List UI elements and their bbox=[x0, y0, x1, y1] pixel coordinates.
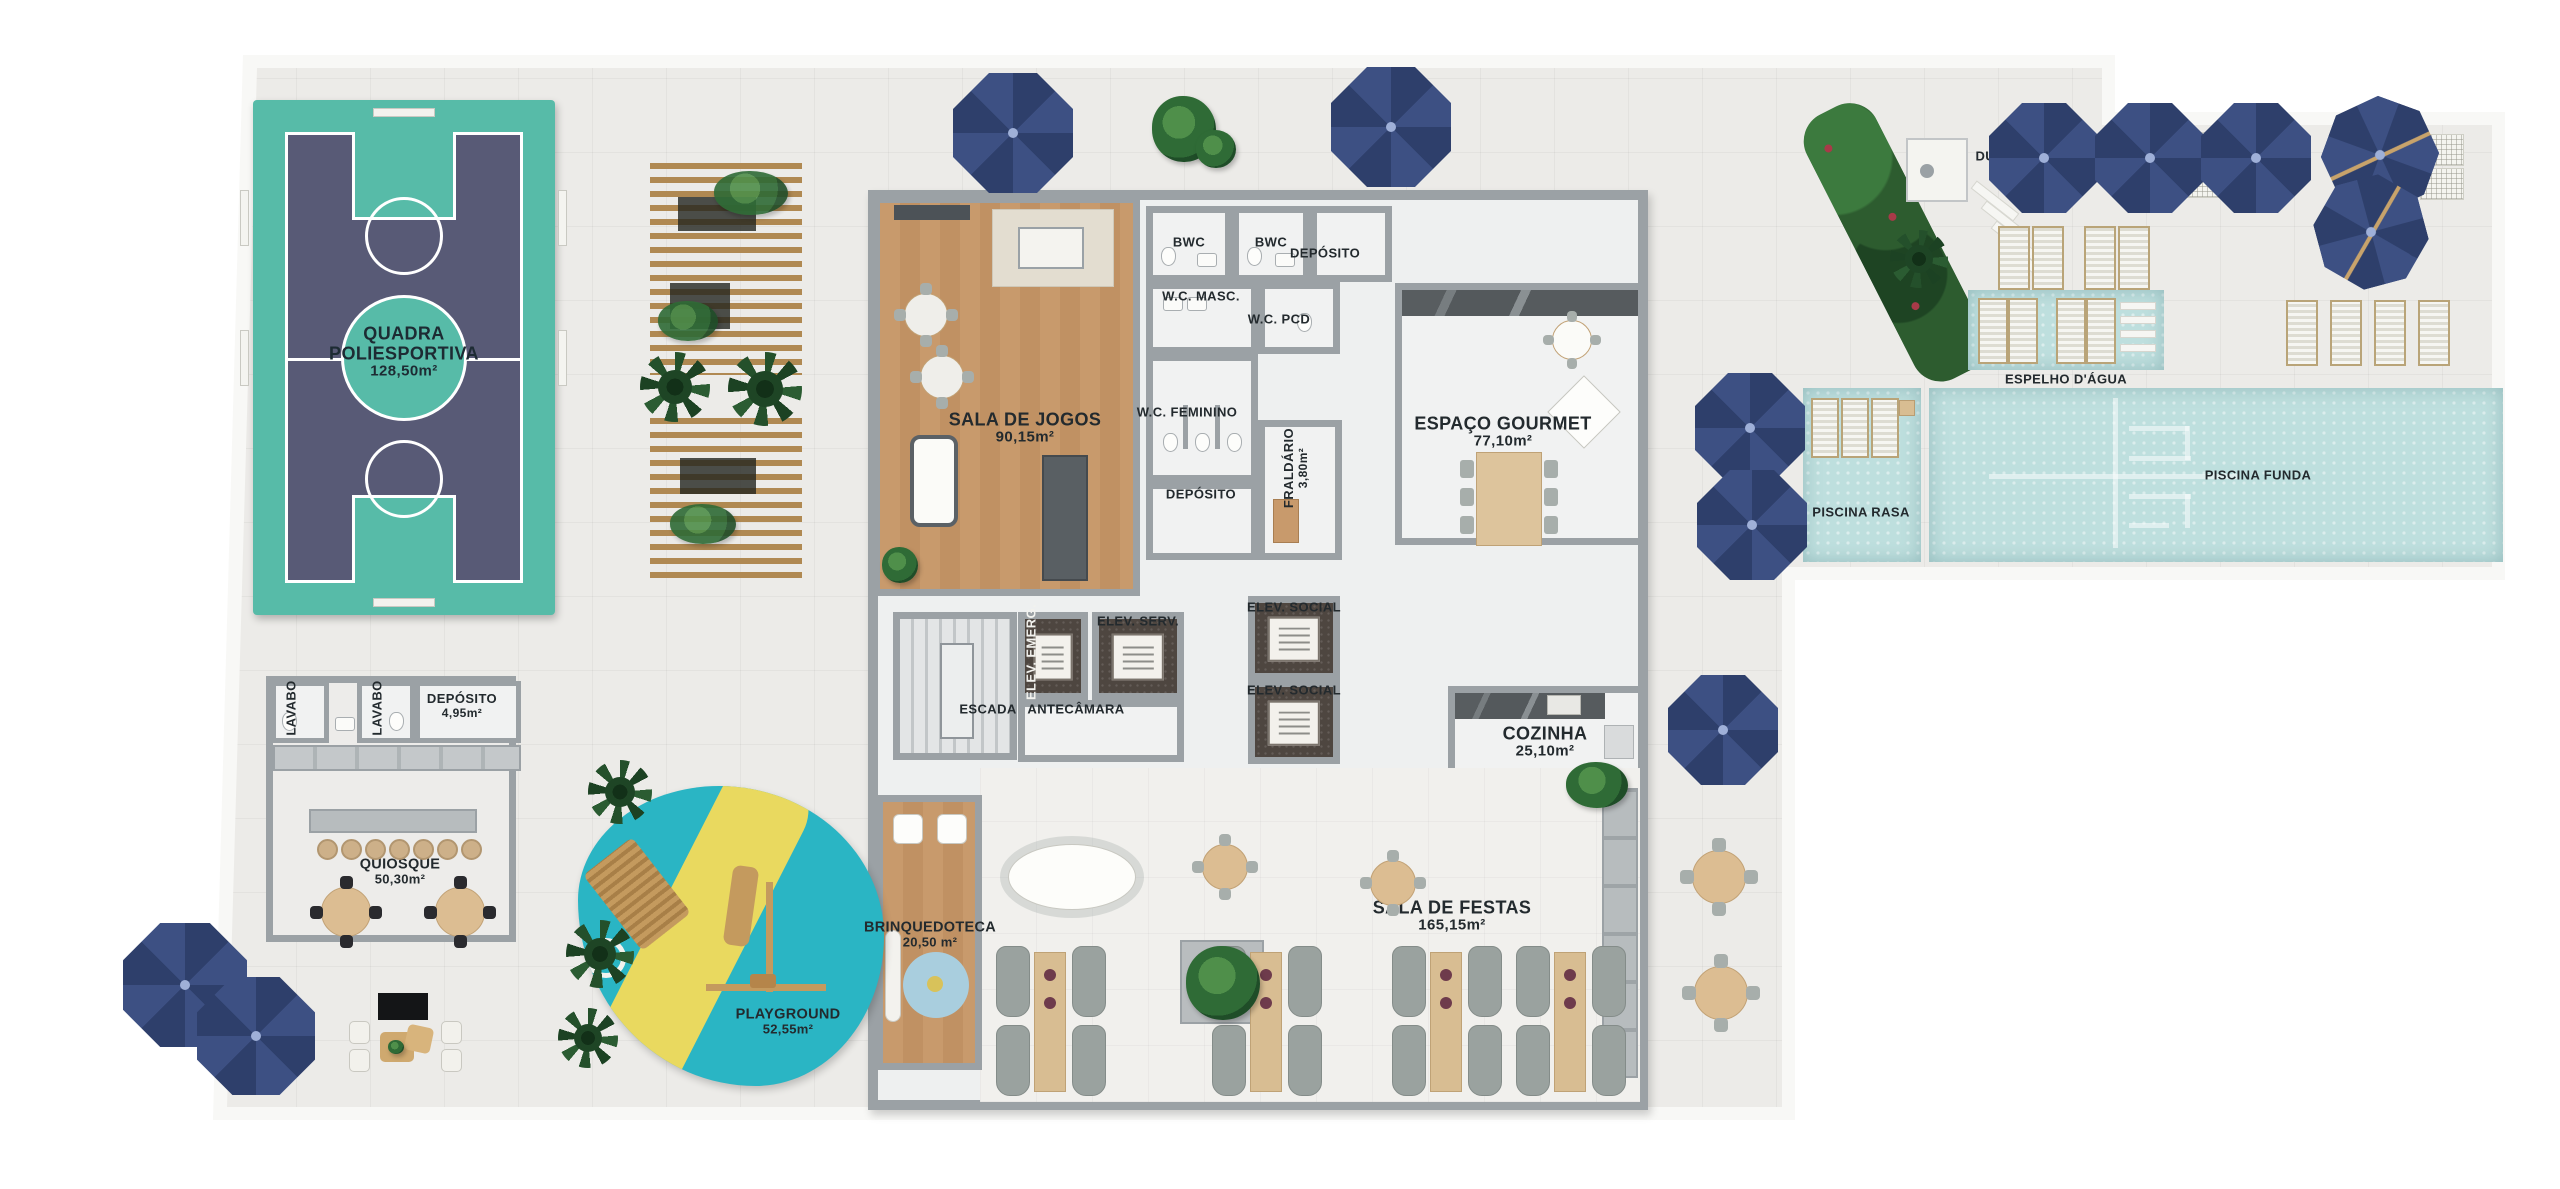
umbrella bbox=[2095, 103, 2205, 213]
plant bbox=[1566, 762, 1628, 808]
pergola bbox=[650, 163, 802, 375]
pergola-vine bbox=[670, 504, 736, 544]
palm-tree bbox=[728, 352, 802, 426]
label-sala-jogos: SALA DE JOGOS 90,15m² bbox=[949, 410, 1102, 447]
bar-stool bbox=[413, 839, 434, 860]
room-name: BRINQUEDOTECA bbox=[864, 920, 996, 936]
label-espelho-dagua: ESPELHO D'ÁGUA bbox=[2005, 373, 2127, 388]
terrace-table bbox=[1694, 966, 1748, 1020]
plant bbox=[882, 547, 918, 583]
dining-chair bbox=[1544, 460, 1558, 478]
label-lavabo-2: LAVABO bbox=[371, 680, 386, 735]
umbrella bbox=[1697, 470, 1807, 580]
bar-stool bbox=[341, 839, 362, 860]
pergola bbox=[650, 418, 802, 583]
room-name: QUADRA POLIESPORTIVA bbox=[319, 323, 489, 363]
fridge bbox=[1604, 725, 1634, 759]
court-arc-bottom bbox=[365, 440, 443, 518]
cabinet bbox=[894, 205, 970, 220]
room-name: LAVABO bbox=[371, 680, 386, 735]
armchair bbox=[441, 1021, 462, 1044]
room-area: 165,15m² bbox=[1373, 918, 1532, 935]
room-name: ANTECÂMARA bbox=[1027, 703, 1124, 718]
court-bench bbox=[240, 190, 249, 246]
court-bench bbox=[240, 330, 249, 386]
backboard-top bbox=[373, 108, 435, 117]
plant bbox=[388, 1040, 404, 1054]
indoor-tree bbox=[1186, 946, 1260, 1020]
label-deposito-top: DEPÓSITO bbox=[1290, 247, 1360, 262]
room-name: COZINHA bbox=[1503, 724, 1588, 744]
shower-head-icon bbox=[1920, 164, 1934, 178]
palm-tree bbox=[566, 920, 634, 988]
room-area: 3,80m² bbox=[1297, 428, 1310, 508]
room-name: BWC bbox=[1255, 236, 1287, 251]
court-bench bbox=[558, 330, 567, 386]
label-quiosque: QUIOSQUE 50,30m² bbox=[360, 857, 441, 888]
sun-lounger bbox=[2084, 226, 2116, 290]
room-sala-jogos bbox=[873, 196, 1140, 596]
dining-chair bbox=[1544, 516, 1558, 534]
room-name: ELEV. SOCIAL bbox=[1247, 601, 1341, 616]
tv-panel bbox=[378, 993, 428, 1020]
in-water-lounger bbox=[2086, 298, 2116, 364]
room-area: 128,50m² bbox=[319, 364, 489, 381]
label-elev-emerg: ELEV. EMERG. bbox=[1025, 604, 1040, 700]
palm-tree bbox=[588, 760, 652, 824]
label-lavabo-1: LAVABO bbox=[285, 680, 300, 735]
label-deposito-quiosque: DEPÓSITO 4,95m² bbox=[427, 692, 497, 720]
quiosque-table bbox=[321, 887, 371, 937]
sun-lounger bbox=[2374, 300, 2406, 366]
label-bwc1: BWC bbox=[1173, 236, 1205, 251]
room-sala-festas bbox=[980, 768, 1640, 1102]
label-brinquedoteca: BRINQUEDOTECA 20,50 m² bbox=[864, 920, 996, 951]
round-table bbox=[1370, 860, 1416, 906]
coffee-table bbox=[404, 1024, 435, 1055]
label-escada: ESCADA bbox=[959, 703, 1016, 718]
kids-table bbox=[937, 814, 967, 844]
shrub bbox=[1196, 130, 1236, 168]
in-water-lounger bbox=[1871, 398, 1899, 458]
game-table bbox=[920, 355, 964, 399]
label-fraldario: FRALDÁRIO 3,80m² bbox=[1282, 428, 1310, 508]
room-name: ESPELHO D'ÁGUA bbox=[2005, 373, 2127, 388]
banquet-set bbox=[996, 946, 1106, 1096]
bar-stool bbox=[317, 839, 338, 860]
room-name: ESPAÇO GOURMET bbox=[1414, 414, 1591, 434]
label-elev-social-1: ELEV. SOCIAL bbox=[1247, 601, 1341, 616]
label-wc-masc: W.C. MASC. bbox=[1162, 290, 1240, 305]
sun-lounger bbox=[2286, 300, 2318, 366]
label-elev-social-2: ELEV. SOCIAL bbox=[1247, 684, 1341, 699]
palm-tree bbox=[640, 352, 710, 422]
umbrella bbox=[953, 73, 1073, 193]
gourmet-counter bbox=[1402, 290, 1638, 316]
room-area: 52,55m² bbox=[736, 1023, 841, 1038]
label-wc-fem: W.C. FEMININO bbox=[1137, 406, 1238, 421]
backboard-bottom bbox=[373, 598, 435, 607]
quiosque-kitchen-counter bbox=[273, 745, 521, 771]
label-antecamara: ANTECÂMARA bbox=[1027, 703, 1124, 718]
in-water-lounger bbox=[1811, 398, 1839, 458]
banquet-set bbox=[1392, 946, 1502, 1096]
toilet-icon bbox=[1227, 433, 1242, 452]
floor-plan: QUADRA POLIESPORTIVA 128,50m² SALA DE JO… bbox=[0, 0, 2560, 1189]
elevator-cab bbox=[1268, 617, 1320, 662]
pool-shallow bbox=[1803, 388, 1921, 562]
room-name: PISCINA FUNDA bbox=[2205, 469, 2312, 484]
swing-seat bbox=[750, 974, 776, 988]
game-table bbox=[904, 293, 948, 337]
room-lavabo-1 bbox=[271, 681, 329, 743]
room-name: SALA DE JOGOS bbox=[949, 410, 1102, 430]
label-piscina-rasa: PISCINA RASA bbox=[1812, 506, 1910, 521]
room-name: ESCADA bbox=[959, 703, 1016, 718]
label-wc-pcd: W.C. PCD bbox=[1248, 313, 1310, 328]
elevator-cab bbox=[1034, 634, 1073, 681]
kids-table bbox=[893, 814, 923, 844]
pergola-seat bbox=[680, 458, 756, 494]
pool-step bbox=[2120, 302, 2156, 310]
palm-tree bbox=[558, 1008, 618, 1068]
room-escada bbox=[893, 612, 1017, 760]
room-area: 20,50 m² bbox=[864, 936, 996, 951]
room-name: BWC bbox=[1173, 236, 1205, 251]
water-mirror bbox=[1968, 290, 2164, 370]
sun-lounger bbox=[2032, 226, 2064, 290]
sink-icon bbox=[335, 717, 355, 731]
elevator-cab bbox=[1268, 701, 1320, 746]
umbrella bbox=[1668, 675, 1778, 785]
in-water-lounger bbox=[1841, 398, 1869, 458]
oval-table bbox=[1008, 844, 1136, 910]
stair-rail bbox=[940, 643, 974, 739]
room-area: 90,15m² bbox=[949, 430, 1102, 447]
bar-stool bbox=[365, 839, 386, 860]
elevator-cab bbox=[1112, 634, 1164, 681]
flower bbox=[1887, 211, 1898, 222]
round-table bbox=[1552, 320, 1592, 360]
bar-counter bbox=[309, 809, 477, 833]
room-name: ELEV. EMERG. bbox=[1025, 604, 1040, 700]
label-deposito-mid: DEPÓSITO bbox=[1166, 488, 1236, 503]
umbrella bbox=[1989, 103, 2099, 213]
room-name: W.C. PCD bbox=[1248, 313, 1310, 328]
umbrella bbox=[2201, 103, 2311, 213]
room-name: PLAYGROUND bbox=[736, 1007, 841, 1023]
room-name: DEPÓSITO bbox=[427, 692, 497, 707]
court-arc-top bbox=[365, 197, 443, 275]
banquet-set bbox=[1516, 946, 1626, 1096]
flower bbox=[1910, 301, 1921, 312]
armchair bbox=[349, 1021, 370, 1044]
bar-stool bbox=[461, 839, 482, 860]
room-lavabo-2 bbox=[357, 681, 415, 743]
bar-stool bbox=[437, 839, 458, 860]
sun-lounger bbox=[2118, 226, 2150, 290]
room-name: FRALDÁRIO bbox=[1282, 428, 1297, 508]
pool-step bbox=[2120, 316, 2156, 324]
label-bwc2: BWC bbox=[1255, 236, 1287, 251]
pergola-vine bbox=[658, 301, 718, 341]
stove bbox=[1547, 695, 1581, 715]
toilet-icon bbox=[1163, 433, 1178, 452]
pool-side-table bbox=[1899, 400, 1915, 416]
dining-chair bbox=[1544, 488, 1558, 506]
label-quadra: QUADRA POLIESPORTIVA 128,50m² bbox=[319, 323, 489, 380]
flower bbox=[1823, 143, 1834, 154]
label-piscina-funda: PISCINA FUNDA bbox=[2205, 469, 2312, 484]
room-deposito-top bbox=[1310, 206, 1392, 282]
room-area: 25,10m² bbox=[1503, 744, 1588, 761]
terrace-table bbox=[1692, 850, 1746, 904]
toilet-icon bbox=[1195, 433, 1210, 452]
room-name: ELEV. SOCIAL bbox=[1247, 684, 1341, 699]
armchair bbox=[349, 1049, 370, 1072]
air-hockey-table bbox=[910, 435, 958, 527]
snooker-table bbox=[1042, 455, 1088, 581]
toilet-icon bbox=[389, 712, 404, 731]
room-area: 77,10m² bbox=[1414, 434, 1591, 451]
room-name: ELEV. SERV. bbox=[1097, 615, 1179, 630]
palm-tree bbox=[1890, 230, 1948, 288]
dining-chair bbox=[1460, 488, 1474, 506]
sink-icon bbox=[1197, 253, 1217, 267]
armchair bbox=[441, 1049, 462, 1072]
label-cozinha: COZINHA 25,10m² bbox=[1503, 724, 1588, 761]
court-bench bbox=[558, 190, 567, 246]
label-playground: PLAYGROUND 52,55m² bbox=[736, 1007, 841, 1038]
room-name: W.C. MASC. bbox=[1162, 290, 1240, 305]
dining-table bbox=[1476, 452, 1542, 546]
in-water-lounger bbox=[2056, 298, 2086, 364]
kitchen-counter bbox=[1455, 693, 1605, 719]
pool-step bbox=[2120, 330, 2156, 338]
round-table bbox=[1202, 844, 1248, 890]
dining-chair bbox=[1460, 516, 1474, 534]
room-name: DEPÓSITO bbox=[1290, 247, 1360, 262]
pergola-vine bbox=[714, 171, 788, 215]
toy bbox=[927, 976, 943, 992]
in-water-lounger bbox=[2008, 298, 2038, 364]
room-name: PISCINA RASA bbox=[1812, 506, 1910, 521]
shower-platform bbox=[1906, 138, 1968, 202]
dining-chair bbox=[1460, 460, 1474, 478]
umbrella bbox=[1331, 67, 1451, 187]
bar-stool bbox=[389, 839, 410, 860]
room-area: 4,95m² bbox=[427, 707, 497, 720]
sun-lounger bbox=[2418, 300, 2450, 366]
room-name: DEPÓSITO bbox=[1166, 488, 1236, 503]
quiosque-table bbox=[435, 887, 485, 937]
room-area: 50,30m² bbox=[360, 873, 441, 888]
foosball-table bbox=[1018, 227, 1084, 269]
umbrella bbox=[1695, 373, 1805, 483]
in-water-lounger bbox=[1978, 298, 2008, 364]
sun-lounger bbox=[2330, 300, 2362, 366]
label-elev-serv: ELEV. SERV. bbox=[1097, 615, 1179, 630]
label-espaco-gourmet: ESPAÇO GOURMET 77,10m² bbox=[1414, 414, 1591, 451]
pool-step bbox=[2120, 344, 2156, 352]
sun-lounger bbox=[1998, 226, 2030, 290]
room-name: LAVABO bbox=[285, 680, 300, 735]
room-name: W.C. FEMININO bbox=[1137, 406, 1238, 421]
